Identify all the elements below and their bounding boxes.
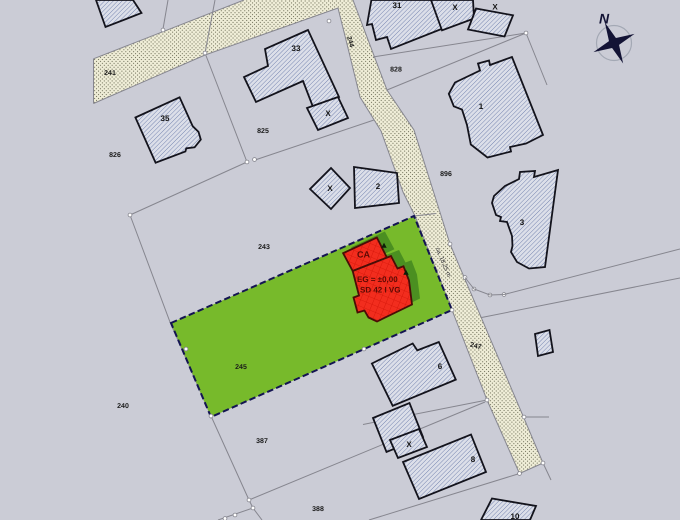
svg-text:X: X — [325, 109, 331, 118]
svg-text:CA: CA — [357, 250, 370, 260]
svg-text:X: X — [327, 184, 333, 193]
svg-text:10: 10 — [511, 512, 520, 520]
svg-text:31: 31 — [393, 1, 402, 10]
svg-text:825: 825 — [257, 128, 269, 135]
svg-text:6: 6 — [438, 362, 443, 371]
svg-text:896: 896 — [440, 171, 452, 178]
svg-text:388: 388 — [312, 506, 324, 513]
svg-text:241: 241 — [104, 70, 116, 77]
svg-text:2: 2 — [376, 182, 381, 191]
svg-text:35: 35 — [161, 114, 170, 123]
svg-text:8: 8 — [471, 455, 476, 464]
svg-text:SD 42 I VG: SD 42 I VG — [360, 286, 400, 295]
svg-text:X: X — [452, 3, 458, 12]
svg-text:X: X — [406, 440, 412, 449]
svg-text:X: X — [492, 3, 498, 12]
svg-text:1: 1 — [479, 102, 484, 111]
svg-text:387: 387 — [256, 438, 268, 445]
svg-text:828: 828 — [390, 67, 402, 74]
svg-text:N: N — [599, 11, 610, 27]
svg-text:240: 240 — [117, 403, 129, 410]
svg-text:3: 3 — [520, 218, 525, 227]
svg-text:243: 243 — [258, 244, 270, 251]
svg-text:EG = ±0,00: EG = ±0,00 — [357, 275, 398, 284]
svg-text:826: 826 — [109, 152, 121, 159]
svg-text:245: 245 — [235, 364, 247, 371]
svg-text:33: 33 — [292, 44, 301, 53]
